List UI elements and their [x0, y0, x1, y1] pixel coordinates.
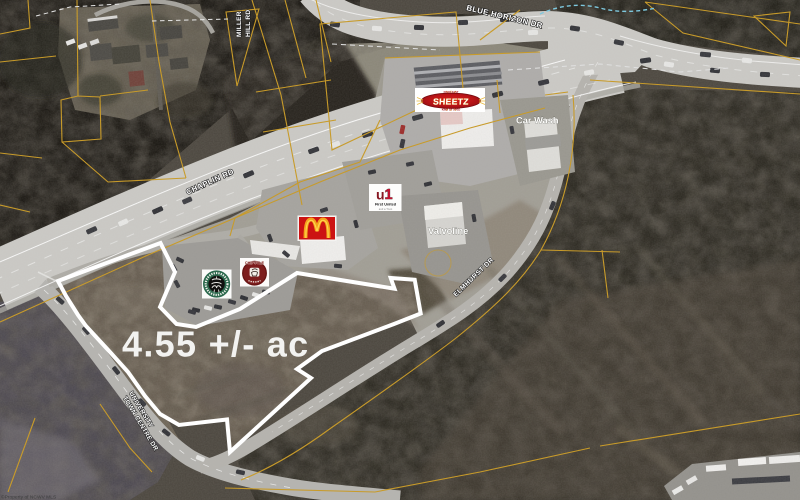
- svg-text:First United: First United: [375, 203, 397, 207]
- svg-text:KIND OF SPED: KIND OF SPED: [442, 108, 461, 112]
- svg-text:MILLER: MILLER: [236, 11, 243, 37]
- svg-text:1: 1: [385, 187, 393, 203]
- svg-text:u: u: [376, 187, 385, 203]
- svg-text:CHIPOTLE: CHIPOTLE: [245, 261, 265, 265]
- svg-text:FOOD FAST: FOOD FAST: [444, 90, 459, 94]
- svg-text:SHEETZ: SHEETZ: [433, 96, 470, 106]
- svg-text:and a Trust: and a Trust: [379, 207, 393, 211]
- svg-text:4.55 +/- ac: 4.55 +/- ac: [122, 324, 309, 365]
- svg-text:Car Wash: Car Wash: [516, 116, 559, 126]
- svg-text:HILL RD: HILL RD: [245, 10, 252, 37]
- svg-text:Valvoline: Valvoline: [428, 226, 468, 236]
